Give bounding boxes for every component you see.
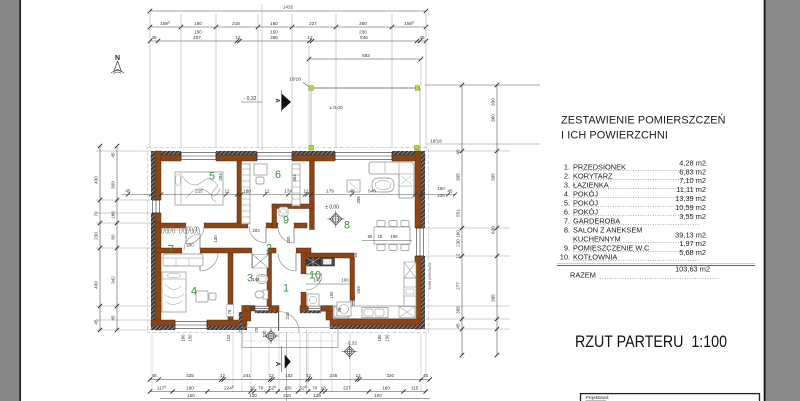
svg-text:2: 2 (266, 243, 272, 255)
svg-text:407: 407 (193, 35, 201, 40)
svg-text:10.: 10. (560, 253, 570, 262)
svg-text:210: 210 (283, 393, 291, 398)
svg-text:45: 45 (111, 152, 116, 158)
svg-text:12: 12 (306, 373, 312, 378)
svg-text:3.: 3. (564, 181, 570, 190)
svg-text:230: 230 (94, 232, 99, 240)
svg-text:11,11 m2: 11,11 m2 (676, 185, 706, 194)
svg-text:218: 218 (232, 21, 240, 26)
svg-text:8.: 8. (564, 226, 570, 235)
svg-text:± 0,00: ± 0,00 (329, 105, 343, 111)
svg-text:45: 45 (419, 35, 425, 40)
svg-text:150: 150 (329, 291, 334, 299)
svg-text:6,83 m2: 6,83 m2 (679, 168, 706, 177)
svg-text:227: 227 (343, 386, 351, 391)
svg-text:430: 430 (94, 281, 99, 289)
svg-text:12: 12 (269, 373, 275, 378)
svg-text:13,39 m2: 13,39 m2 (675, 194, 706, 203)
svg-text:10,59 m2: 10,59 m2 (675, 203, 706, 212)
svg-text:45: 45 (125, 189, 131, 194)
svg-text:385: 385 (456, 306, 461, 314)
svg-text:203: 203 (252, 228, 260, 233)
svg-text:5: 5 (209, 171, 215, 183)
svg-text:174: 174 (284, 189, 292, 194)
svg-text:12: 12 (224, 189, 230, 194)
svg-text:199: 199 (391, 234, 399, 239)
svg-text:70: 70 (238, 327, 243, 332)
svg-text:146: 146 (313, 278, 321, 283)
svg-text:385: 385 (491, 294, 496, 302)
svg-text:546: 546 (360, 35, 368, 40)
svg-text:45: 45 (151, 35, 157, 40)
svg-text:364: 364 (292, 174, 297, 182)
svg-text:6.: 6. (564, 208, 570, 217)
svg-text:45: 45 (447, 189, 453, 194)
svg-text:182: 182 (285, 373, 293, 378)
svg-text:70: 70 (254, 327, 259, 332)
svg-text:A: A (274, 362, 280, 367)
svg-text:305: 305 (491, 173, 496, 181)
svg-text:103,63 m2: 103,63 m2 (675, 264, 710, 273)
svg-text:12: 12 (220, 373, 226, 378)
svg-text:330: 330 (491, 98, 496, 106)
svg-text:RZUT PARTERU 1:100: RZUT PARTERU 1:100 (575, 333, 727, 351)
svg-text:180: 180 (186, 386, 194, 391)
svg-text:200: 200 (186, 243, 194, 248)
svg-text:45: 45 (456, 149, 461, 155)
svg-text:- 0,32: - 0,32 (244, 96, 257, 102)
svg-text:78: 78 (227, 309, 232, 314)
svg-text:241: 241 (243, 373, 251, 378)
svg-text:150: 150 (187, 393, 195, 398)
svg-text:12: 12 (456, 253, 461, 259)
svg-text:395: 395 (356, 196, 361, 204)
svg-text:5.: 5. (564, 199, 570, 208)
svg-text:394: 394 (218, 173, 223, 181)
svg-text:227: 227 (309, 21, 317, 26)
svg-text:130: 130 (213, 235, 218, 243)
svg-text:180: 180 (270, 21, 278, 26)
svg-text:320: 320 (386, 373, 394, 378)
svg-text:39,13 m2: 39,13 m2 (675, 230, 706, 239)
svg-text:A: A (274, 98, 280, 103)
svg-text:8: 8 (344, 220, 350, 232)
svg-text:3,55 m2: 3,55 m2 (679, 212, 706, 221)
svg-text:150: 150 (194, 30, 202, 35)
svg-text:45: 45 (152, 373, 158, 378)
svg-text:230: 230 (456, 239, 461, 247)
svg-text:180: 180 (382, 386, 390, 391)
svg-text:RAZEM: RAZEM (570, 271, 596, 280)
svg-text:230: 230 (359, 30, 367, 35)
svg-text:7.: 7. (564, 217, 570, 226)
svg-text:- 0,32: - 0,32 (345, 341, 357, 346)
svg-text:12: 12 (264, 189, 270, 194)
svg-text:I ICH POWIERZCHNI: I ICH POWIERZCHNI (561, 130, 668, 142)
svg-text:551: 551 (456, 209, 461, 217)
svg-text:180: 180 (194, 21, 202, 26)
svg-text:5,68 m2: 5,68 m2 (679, 248, 706, 257)
svg-text:160: 160 (437, 186, 445, 191)
svg-text:9: 9 (283, 215, 289, 227)
svg-text:360: 360 (491, 114, 496, 122)
svg-text:583: 583 (362, 53, 370, 58)
svg-text:150: 150 (385, 334, 390, 342)
svg-text:45: 45 (111, 315, 116, 321)
svg-text:277: 277 (456, 282, 461, 290)
svg-text:259: 259 (356, 286, 361, 294)
svg-text:4,28 m2: 4,28 m2 (679, 159, 706, 168)
svg-text:148: 148 (253, 277, 261, 282)
svg-text:150: 150 (188, 334, 193, 342)
svg-text:166: 166 (111, 211, 116, 219)
svg-text:ZESTAWIENIE POMIERSZCZEŃ: ZESTAWIENIE POMIERSZCZEŃ (561, 114, 726, 127)
svg-text:SALON Z ANEKSEM: SALON Z ANEKSEM (573, 226, 642, 235)
svg-text:12: 12 (356, 373, 362, 378)
svg-text:180: 180 (377, 334, 382, 342)
svg-text:105: 105 (284, 386, 292, 391)
svg-text:300: 300 (359, 21, 367, 26)
svg-text:1,97 m2: 1,97 m2 (679, 239, 706, 248)
svg-text:180: 180 (181, 334, 186, 342)
svg-text:12: 12 (307, 35, 313, 40)
svg-text:10/18: 10/18 (289, 77, 301, 82)
svg-text:80: 80 (111, 234, 116, 240)
svg-text:12: 12 (303, 189, 309, 194)
svg-text:215: 215 (195, 189, 203, 194)
svg-text:18: 18 (378, 234, 383, 239)
svg-text:18: 18 (321, 386, 327, 391)
svg-text:Projektował:: Projektował: (586, 395, 609, 400)
svg-text:78: 78 (337, 307, 342, 312)
svg-text:45: 45 (423, 373, 429, 378)
svg-text:325: 325 (186, 373, 194, 378)
svg-text:85: 85 (368, 234, 373, 239)
svg-text:230: 230 (437, 193, 445, 198)
svg-text:210: 210 (285, 312, 290, 320)
svg-text:546: 546 (368, 189, 376, 194)
svg-text:102: 102 (226, 334, 231, 342)
svg-text:1432: 1432 (283, 5, 294, 10)
svg-text:342: 342 (111, 276, 116, 284)
svg-text:200: 200 (286, 236, 291, 244)
svg-text:4.: 4. (564, 190, 570, 199)
svg-text:138: 138 (313, 393, 321, 398)
svg-text:45: 45 (94, 319, 99, 325)
svg-text:179: 179 (326, 189, 334, 194)
svg-text:150: 150 (374, 393, 382, 398)
svg-text:160: 160 (456, 230, 461, 238)
svg-text:245: 245 (330, 373, 338, 378)
svg-text:130: 130 (249, 393, 257, 398)
svg-text:430: 430 (94, 176, 99, 184)
svg-text:305: 305 (456, 173, 461, 181)
svg-text:1: 1 (283, 283, 289, 295)
svg-text:12: 12 (235, 35, 241, 40)
svg-text:1.: 1. (564, 163, 570, 172)
svg-text:180: 180 (243, 189, 251, 194)
svg-text:2.: 2. (564, 172, 570, 181)
svg-text:70: 70 (94, 211, 99, 217)
svg-text:70: 70 (312, 386, 318, 391)
svg-text:309: 309 (111, 181, 116, 189)
svg-text:18: 18 (250, 386, 256, 391)
svg-text:45: 45 (456, 323, 461, 329)
svg-text:115: 115 (411, 386, 419, 391)
svg-text:100: 100 (341, 278, 349, 283)
svg-text:150: 150 (270, 30, 278, 35)
svg-text:630: 630 (491, 226, 496, 234)
svg-text:7: 7 (168, 244, 174, 256)
svg-text:9.: 9. (564, 244, 570, 253)
svg-text:4: 4 (191, 286, 197, 298)
svg-text:6: 6 (275, 169, 281, 181)
svg-text:65: 65 (353, 252, 358, 257)
svg-text:7,10 m2: 7,10 m2 (679, 176, 706, 185)
svg-text:70: 70 (258, 386, 264, 391)
svg-text:18/18: 18/18 (430, 139, 442, 144)
svg-text:365: 365 (270, 35, 278, 40)
svg-text:48: 48 (349, 189, 355, 194)
svg-text:± 0,00: ± 0,00 (325, 205, 339, 211)
